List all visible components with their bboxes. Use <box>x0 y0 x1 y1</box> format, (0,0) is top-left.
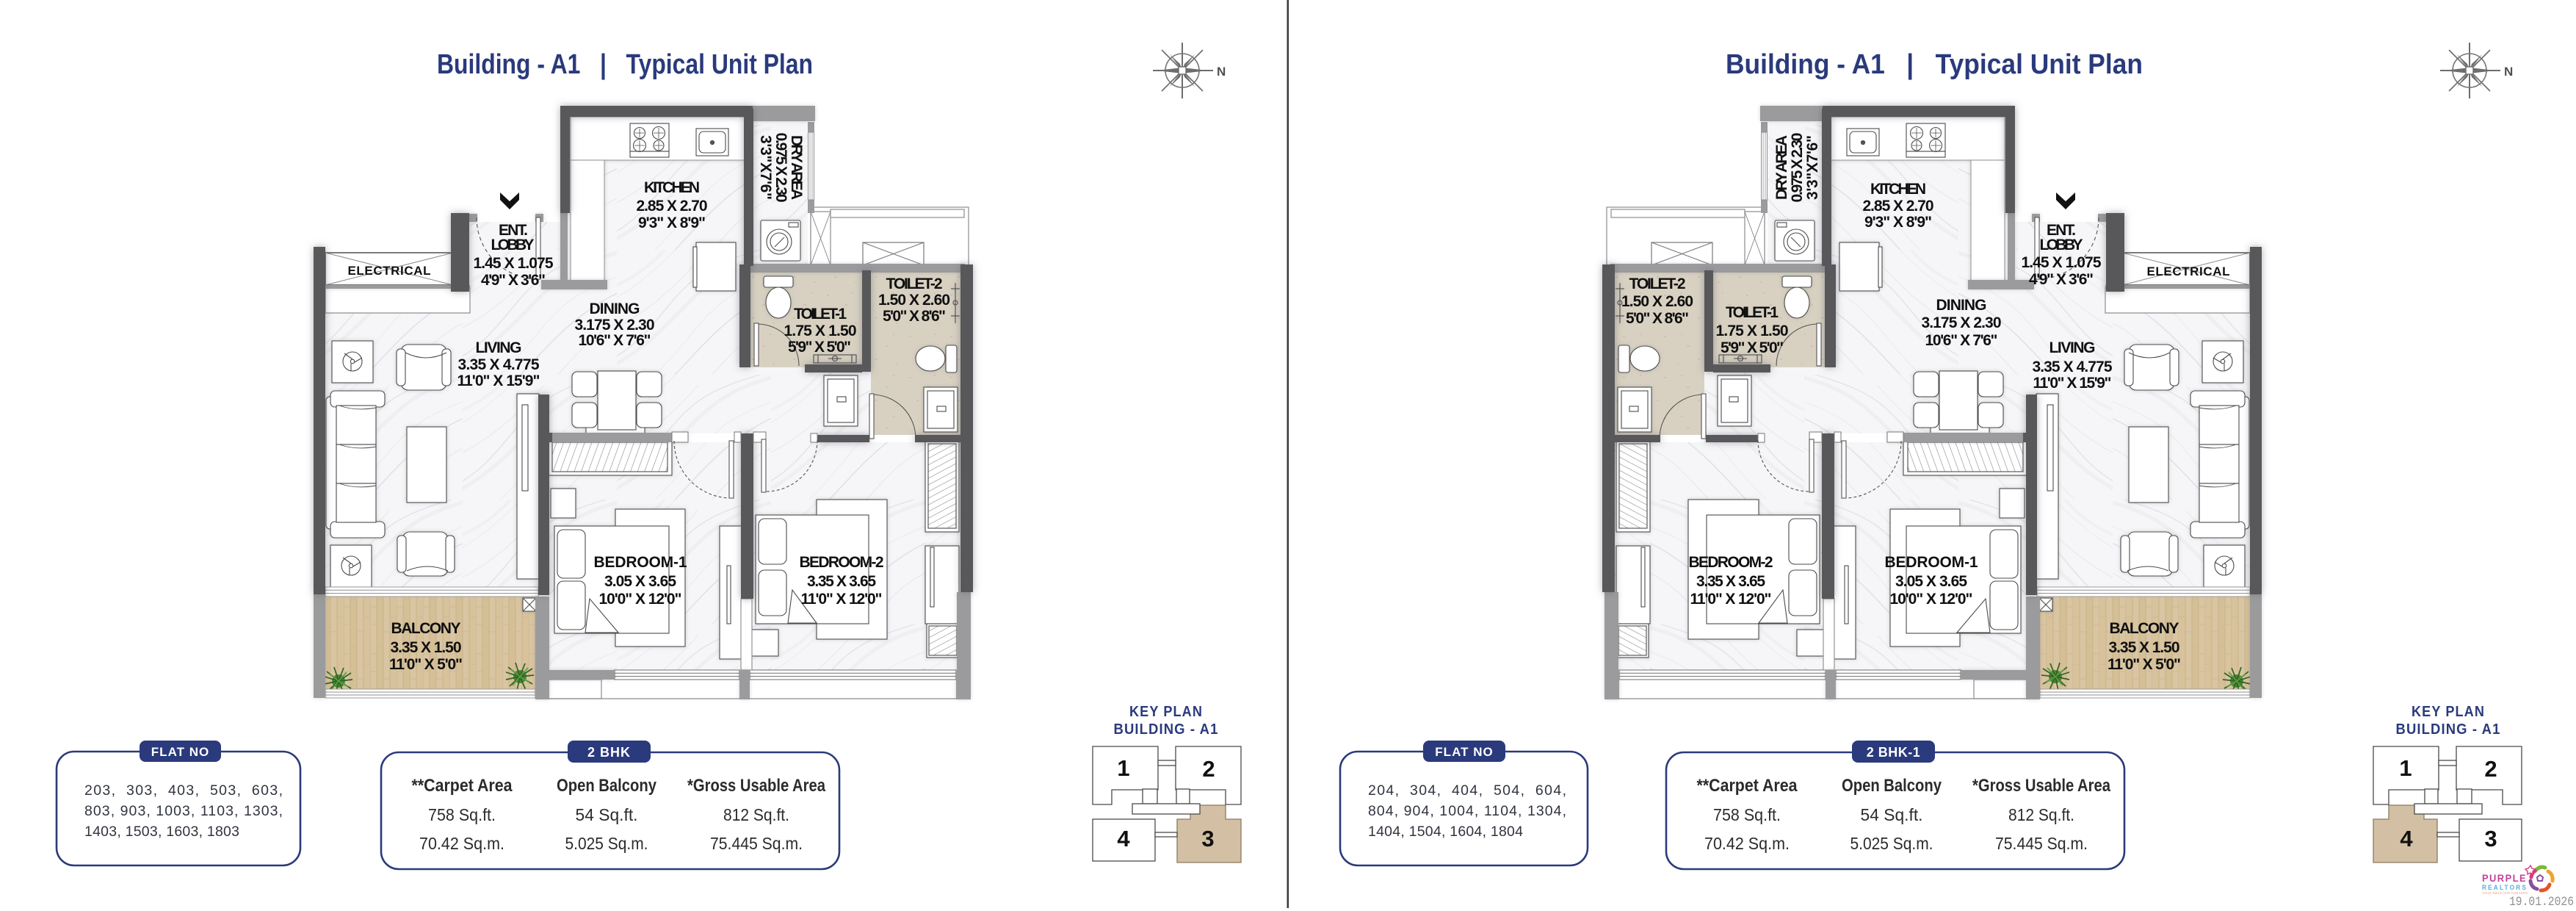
svg-text:10'6" X 7'6": 10'6" X 7'6" <box>1925 332 1998 349</box>
svg-text:3.35 X 1.50: 3.35 X 1.50 <box>391 639 462 656</box>
svg-text:KITCHEN: KITCHEN <box>644 179 700 196</box>
svg-text:TOILET-1: TOILET-1 <box>794 306 847 323</box>
svg-text:803, 903, 1003, 1103, 1303,: 803, 903, 1003, 1103, 1303, <box>84 803 283 819</box>
svg-text:KITCHEN: KITCHEN <box>1870 181 1926 198</box>
svg-text:11'0" X 12'0": 11'0" X 12'0" <box>801 591 883 608</box>
svg-text:1.50 X 2.60: 1.50 X 2.60 <box>878 292 950 309</box>
svg-text:54 Sq.ft.: 54 Sq.ft. <box>1861 805 1923 824</box>
svg-text:11'0" X 15'9": 11'0" X 15'9" <box>457 372 540 389</box>
svg-text:**Carpet Area: **Carpet Area <box>1697 776 1798 796</box>
svg-text:5'0" X 8'6": 5'0" X 8'6" <box>1626 310 1689 327</box>
svg-text:9'3" X 8'9": 9'3" X 8'9" <box>638 215 706 231</box>
svg-text:LOBBY: LOBBY <box>2040 237 2083 253</box>
svg-text:DINING: DINING <box>590 300 640 317</box>
svg-text:2: 2 <box>1202 756 1215 782</box>
svg-text:1: 1 <box>1117 755 1129 781</box>
svg-text:3.35 X 3.65: 3.35 X 3.65 <box>1696 573 1765 590</box>
svg-text:BALCONY: BALCONY <box>2110 620 2179 637</box>
svg-text:0.975 X 2.30: 0.975 X 2.30 <box>1789 133 1806 203</box>
svg-text:BEDROOM-2: BEDROOM-2 <box>1689 554 1773 571</box>
svg-text:5'0" X 8'6": 5'0" X 8'6" <box>883 308 946 325</box>
svg-text:**Carpet Area: **Carpet Area <box>412 776 513 796</box>
svg-text:*Gross Usable Area: *Gross Usable Area <box>1972 776 2111 796</box>
svg-text:2 BHK-1: 2 BHK-1 <box>1867 745 1921 760</box>
svg-text:FLAT NO: FLAT NO <box>1435 745 1493 759</box>
svg-text:75.445 Sq.m.: 75.445 Sq.m. <box>1995 834 2088 853</box>
svg-text:BEDROOM-1: BEDROOM-1 <box>594 554 687 571</box>
svg-text:3.35 X 3.65: 3.35 X 3.65 <box>807 573 876 590</box>
svg-text:LOBBY: LOBBY <box>491 237 535 253</box>
svg-text:2 BHK: 2 BHK <box>587 745 631 760</box>
svg-text:11'0" X 5'0": 11'0" X 5'0" <box>389 656 463 673</box>
svg-text:3.35 X 4.775: 3.35 X 4.775 <box>458 356 540 373</box>
svg-text:5'9" X 5'0": 5'9" X 5'0" <box>788 339 851 356</box>
svg-text:FLAT NO: FLAT NO <box>151 745 209 759</box>
svg-text:70.42 Sq.m.: 70.42 Sq.m. <box>1704 834 1790 853</box>
svg-text:BALCONY: BALCONY <box>391 620 461 637</box>
svg-text:758 Sq.ft.: 758 Sq.ft. <box>428 805 496 824</box>
svg-text:10'0" X 12'0": 10'0" X 12'0" <box>1890 591 1973 608</box>
svg-text:70.42 Sq.m.: 70.42 Sq.m. <box>419 834 504 853</box>
svg-text:LIVING: LIVING <box>2049 339 2096 356</box>
svg-text:1.45 X 1.075: 1.45 X 1.075 <box>2022 254 2102 271</box>
svg-text:3.05 X 3.65: 3.05 X 3.65 <box>604 573 676 590</box>
svg-text:Building - A1 | Typical Un: Building - A1 | Typical Unit Plan <box>1726 49 2143 80</box>
svg-text:N: N <box>1217 65 1226 79</box>
svg-text:1403, 1503, 1603, 1803: 1403, 1503, 1603, 1803 <box>84 824 239 840</box>
svg-text:Open Balcony: Open Balcony <box>1842 776 1942 796</box>
svg-text:1.50 X 2.60: 1.50 X 2.60 <box>1621 293 1693 310</box>
svg-text:4'9" X 3'6": 4'9" X 3'6" <box>2029 271 2094 288</box>
svg-text:3.175 X 2.30: 3.175 X 2.30 <box>575 317 655 334</box>
svg-text:KEY PLAN: KEY PLAN <box>2412 704 2485 720</box>
svg-text:1.45 X 1.075: 1.45 X 1.075 <box>474 255 554 272</box>
svg-text:9'3" X 8'9": 9'3" X 8'9" <box>1864 214 1932 231</box>
svg-text:11'0" X 12'0": 11'0" X 12'0" <box>1690 591 1772 608</box>
svg-text:1404, 1504, 1604, 1804: 1404, 1504, 1604, 1804 <box>1368 824 1523 840</box>
svg-text:4: 4 <box>2400 826 2413 851</box>
svg-text:Open Balcony: Open Balcony <box>557 776 657 796</box>
svg-text:3: 3 <box>2484 826 2497 851</box>
svg-text:3.175 X 2.30: 3.175 X 2.30 <box>1922 314 2002 331</box>
svg-text:3.05 X 3.65: 3.05 X 3.65 <box>1895 573 1967 590</box>
svg-text:3.35 X 1.50: 3.35 X 1.50 <box>2109 639 2180 656</box>
svg-text:4: 4 <box>1117 826 1130 851</box>
svg-text:19.01.2026: 19.01.2026 <box>2509 895 2574 910</box>
svg-text:11'0" X 5'0": 11'0" X 5'0" <box>2108 656 2181 673</box>
svg-text:DRY AREA: DRY AREA <box>1773 135 1790 200</box>
svg-text:804, 904, 1004, 1104, 1304,: 804, 904, 1004, 1104, 1304, <box>1368 803 1566 819</box>
svg-text:BEDROOM-1: BEDROOM-1 <box>1885 554 1978 571</box>
svg-text:BUILDING - A1: BUILDING - A1 <box>2396 721 2501 738</box>
svg-text:TOILET-1: TOILET-1 <box>1726 304 1779 321</box>
svg-text:3'3"X7'6": 3'3"X7'6" <box>757 135 774 200</box>
svg-text:BEDROOM-2: BEDROOM-2 <box>800 554 884 571</box>
svg-text:ELECTRICAL: ELECTRICAL <box>2147 264 2230 278</box>
svg-text:10'6" X 7'6": 10'6" X 7'6" <box>579 332 651 349</box>
svg-text:758 Sq.ft.: 758 Sq.ft. <box>1713 805 1781 824</box>
svg-text:DINING: DINING <box>1936 297 1987 314</box>
svg-text:DRY AREA: DRY AREA <box>788 135 805 200</box>
svg-text:*Gross Usable Area: *Gross Usable Area <box>687 776 826 796</box>
svg-text:TOILET-2: TOILET-2 <box>1629 276 1686 292</box>
svg-text:203, 303, 403, 503, 603,: 203, 303, 403, 503, 603, <box>84 782 283 799</box>
svg-text:1.75 X 1.50: 1.75 X 1.50 <box>784 323 857 339</box>
svg-text:3'3"X7'6": 3'3"X7'6" <box>1804 135 1821 200</box>
svg-text:4'9" X 3'6": 4'9" X 3'6" <box>481 272 546 289</box>
svg-text:204, 304, 404, 504, 604,: 204, 304, 404, 504, 604, <box>1368 782 1566 799</box>
svg-text:812 Sq.ft.: 812 Sq.ft. <box>2008 805 2074 824</box>
svg-text:0.975 X 2.30: 0.975 X 2.30 <box>773 133 789 203</box>
svg-text:75.445 Sq.m.: 75.445 Sq.m. <box>710 834 803 853</box>
svg-text:2.85 X 2.70: 2.85 X 2.70 <box>637 198 708 215</box>
svg-text:KEY PLAN: KEY PLAN <box>1129 704 1203 720</box>
svg-text:PURPLE: PURPLE <box>2482 873 2527 884</box>
svg-text:5.025 Sq.m.: 5.025 Sq.m. <box>565 834 648 853</box>
svg-text:TOILET-2: TOILET-2 <box>886 276 943 292</box>
svg-text:Building - A1 | Typical Un: Building - A1 | Typical Unit Plan <box>437 49 813 80</box>
svg-text:LIVING: LIVING <box>476 339 522 356</box>
svg-text:10'0" X 12'0": 10'0" X 12'0" <box>599 591 682 608</box>
svg-text:54 Sq.ft.: 54 Sq.ft. <box>576 805 638 824</box>
svg-text:2.85 X 2.70: 2.85 X 2.70 <box>1863 198 1934 215</box>
svg-text:ELECTRICAL: ELECTRICAL <box>348 264 431 278</box>
svg-text:11'0" X 15'9": 11'0" X 15'9" <box>2033 375 2112 392</box>
svg-text:1: 1 <box>2399 755 2412 781</box>
svg-text:5.025 Sq.m.: 5.025 Sq.m. <box>1850 834 1933 853</box>
svg-text:5'9" X 5'0": 5'9" X 5'0" <box>1721 339 1784 356</box>
svg-text:812 Sq.ft.: 812 Sq.ft. <box>723 805 789 824</box>
svg-text:2: 2 <box>2484 756 2497 782</box>
svg-text:3: 3 <box>1201 826 1214 851</box>
svg-text:1.75 X 1.50: 1.75 X 1.50 <box>1716 323 1789 339</box>
svg-text:3.35 X 4.775: 3.35 X 4.775 <box>2033 359 2113 375</box>
svg-text:BUILDING - A1: BUILDING - A1 <box>1114 721 1219 738</box>
